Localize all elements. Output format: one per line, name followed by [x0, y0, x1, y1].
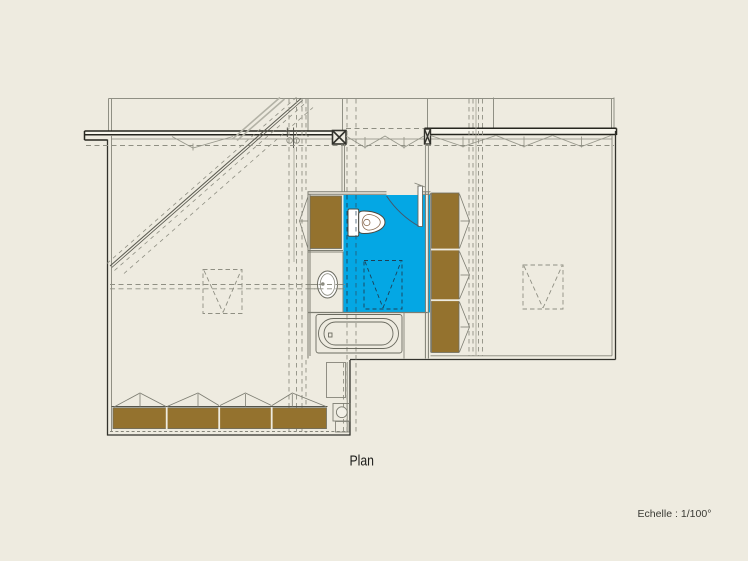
svg-text:Echelle : 1/100°: Echelle : 1/100° [638, 509, 712, 520]
svg-text:Plan: Plan [350, 454, 375, 470]
